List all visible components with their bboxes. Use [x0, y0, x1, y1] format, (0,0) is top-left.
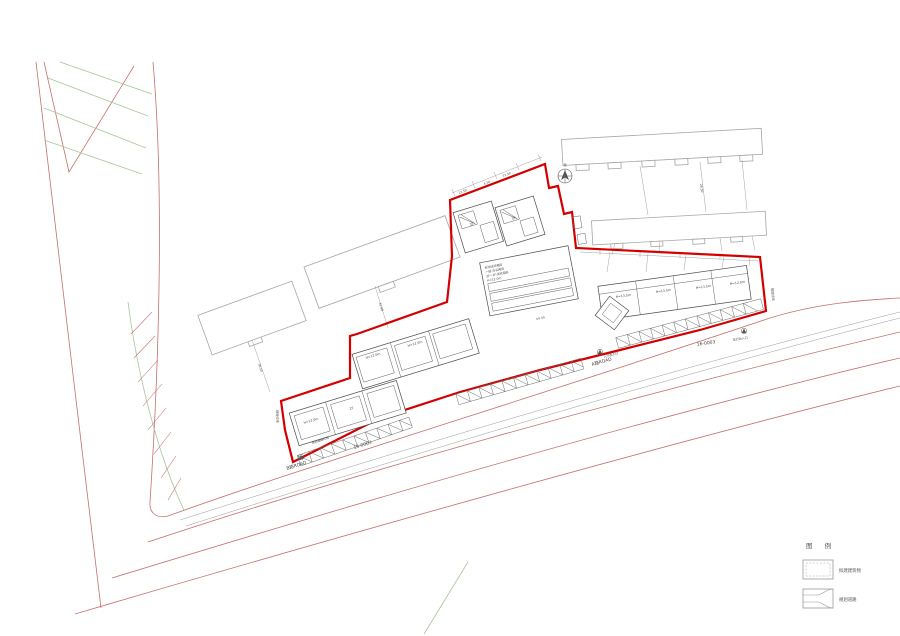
- legend-item-planned-road: 规划道路: [803, 589, 857, 608]
- entrance-symbol-pedestrian: [597, 349, 603, 355]
- dim-left-3: 26.50: [699, 184, 704, 193]
- existing-building-left-1: [304, 216, 462, 314]
- main-road: [75, 298, 900, 614]
- legend-label-proposed-building: 拟建建筑物: [839, 567, 862, 574]
- legend-item-proposed-building: 拟建建筑物: [803, 560, 862, 579]
- existing-building-top-right: [561, 128, 762, 171]
- site-plan-drawing: 检测试验用房 一层:办公用房 2F~3F:试验用房 H=12.0m: [0, 0, 900, 636]
- legend-label-planned-road: 规划道路: [839, 596, 857, 603]
- legend: 图 例 拟建建筑物 规划道路: [803, 541, 862, 608]
- legend-title: 图 例: [806, 541, 836, 550]
- planning-red-line-left-label: 规划红线: [275, 410, 280, 424]
- existing-building-right: [591, 211, 766, 250]
- dim-left-1: 41.88: [378, 302, 384, 311]
- new-building-central: 检测试验用房 一层:办公用房 2F~3F:试验用房 H=12.0m: [480, 246, 579, 316]
- planning-red-line-right-label: 规划红线: [770, 288, 776, 302]
- entrance-symbol-vehicle: [741, 328, 747, 334]
- planned-road-symbol: [803, 589, 833, 608]
- vehicle-entrance-label: 车行出入口: [732, 335, 748, 342]
- site-plan-sheet: 检测试验用房 一层:办公用房 2F~3F:试验用房 H=12.0m: [0, 0, 900, 636]
- parcel-number-right: 16-0003: [696, 339, 716, 348]
- dim-left-2: 38.50: [257, 363, 264, 373]
- parking-row-mid: [456, 358, 584, 404]
- existing-building-left-2: [198, 281, 308, 359]
- level-label: ±0.00: [535, 315, 545, 321]
